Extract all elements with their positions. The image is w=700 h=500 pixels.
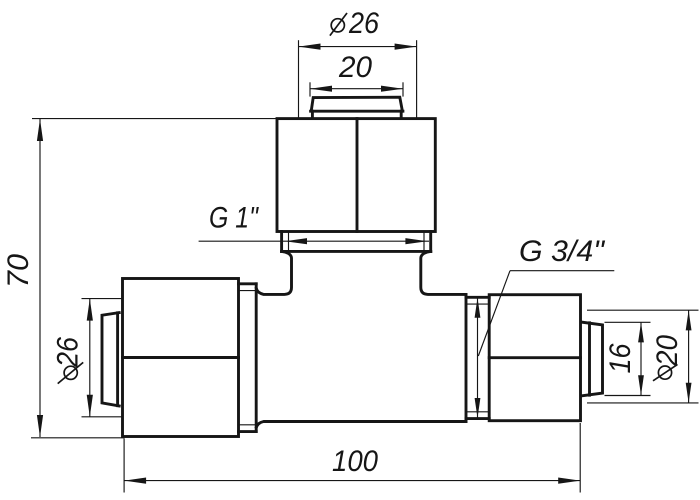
svg-text:G 3/4": G 3/4" bbox=[519, 235, 605, 268]
svg-text:16: 16 bbox=[604, 343, 637, 373]
svg-text:20: 20 bbox=[338, 51, 372, 84]
svg-text:26: 26 bbox=[348, 7, 379, 40]
svg-text:26: 26 bbox=[52, 337, 85, 368]
svg-text:20: 20 bbox=[651, 335, 684, 367]
svg-text:100: 100 bbox=[332, 445, 378, 478]
svg-text:G 1": G 1" bbox=[209, 202, 259, 235]
svg-text:70: 70 bbox=[2, 254, 35, 288]
